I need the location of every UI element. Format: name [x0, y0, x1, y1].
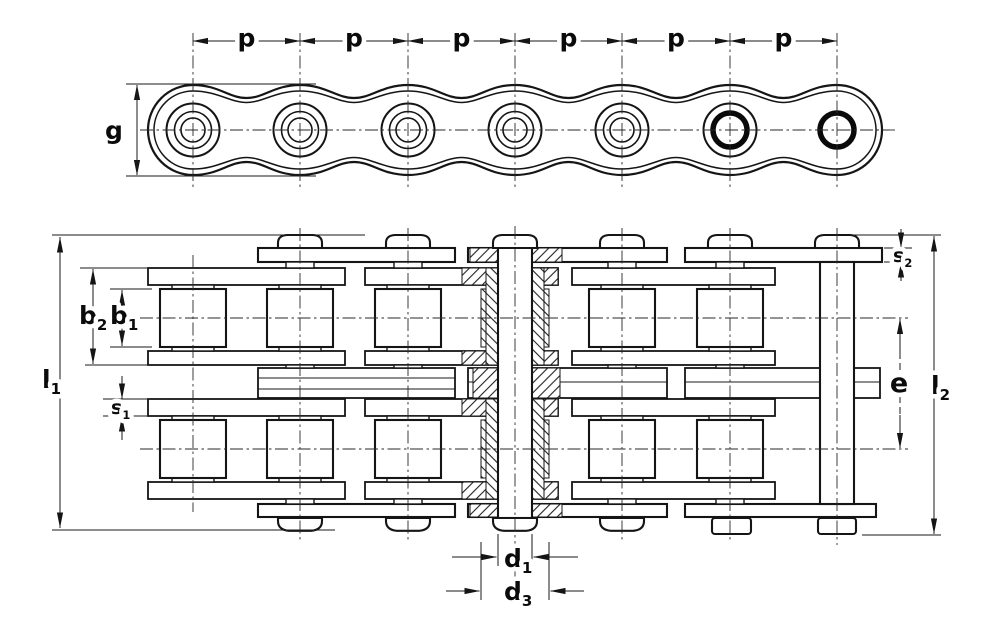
label-pitch: p	[560, 24, 578, 53]
pin-heads	[278, 235, 859, 248]
label-l1: l1	[42, 365, 61, 398]
chain-sectional-view	[52, 226, 941, 601]
label-b1: b1	[110, 301, 138, 334]
inner-plate-bands	[148, 268, 775, 499]
label-s1: s1	[111, 397, 130, 422]
label-d1: d1	[504, 544, 532, 577]
intermediate-plate-band	[258, 368, 880, 398]
label-e: e	[890, 368, 908, 399]
rollers	[160, 289, 763, 478]
label-pitch: p	[345, 24, 363, 53]
label-s2: s2	[893, 245, 912, 270]
label-l2: l2	[931, 371, 950, 404]
label-pitch: p	[453, 24, 471, 53]
chain-side-view	[126, 33, 895, 190]
connecting-pin-stub	[712, 518, 751, 534]
label-pitch: p	[775, 24, 793, 53]
label-d3: d3	[504, 577, 532, 610]
label-pitch: p	[667, 24, 685, 53]
label-pitch: p	[238, 24, 256, 53]
label-b2: b2	[79, 301, 107, 334]
roller-chain-technical-drawing: p p p p p p g l1 b2 b1 s1 s2 e l2 d1 d3	[0, 0, 1000, 635]
label-plate-height: g	[105, 116, 123, 145]
roller-chain-technical-drawing-page: p p p p p p g l1 b2 b1 s1 s2 e l2 d1 d3	[0, 0, 1000, 635]
pin-tails	[278, 518, 856, 534]
